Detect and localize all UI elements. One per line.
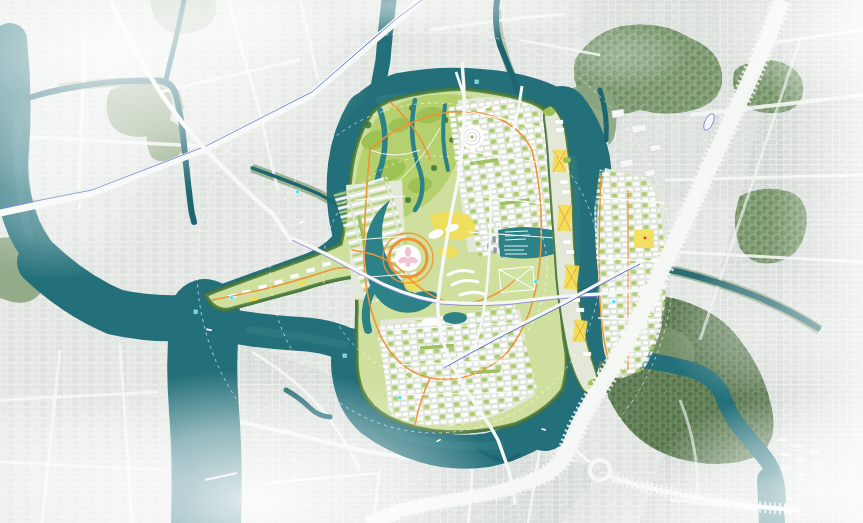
masterplan-aerial-map bbox=[0, 0, 863, 523]
